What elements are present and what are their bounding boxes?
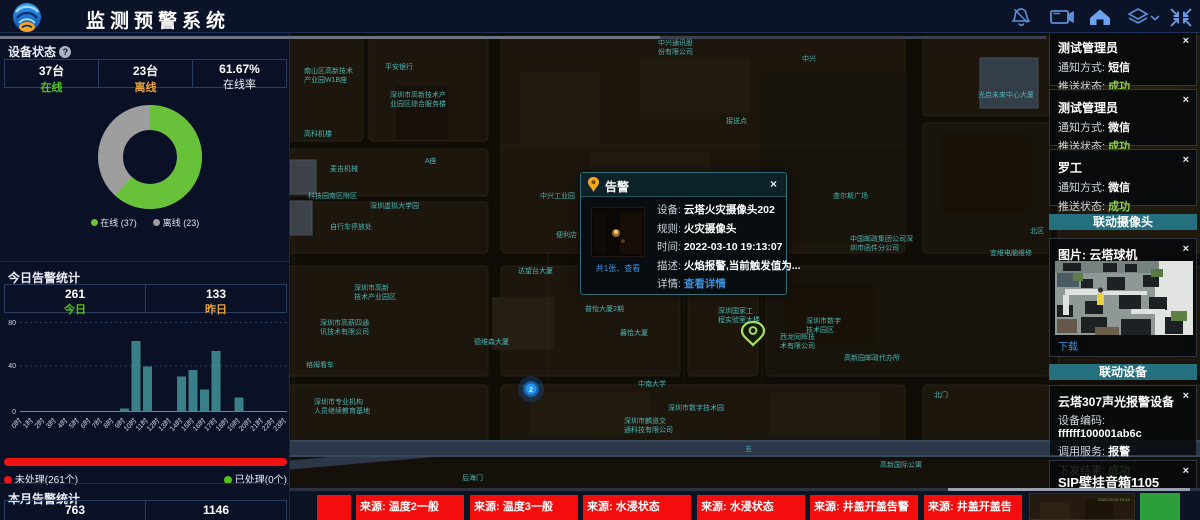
svg-text:后海门: 后海门 bbox=[462, 473, 483, 482]
svg-text:南山区高新技术: 南山区高新技术 bbox=[304, 66, 353, 75]
svg-text:德维森大厦: 德维森大厦 bbox=[474, 337, 509, 346]
svg-text:深圳市数字: 深圳市数字 bbox=[806, 316, 841, 325]
svg-text:4时: 4时 bbox=[55, 416, 69, 430]
svg-text:暮恰大厦: 暮恰大厦 bbox=[620, 328, 648, 337]
svg-text:通科技有限公司: 通科技有限公司 bbox=[624, 425, 673, 434]
svg-text:深圳虚拟大学园: 深圳虚拟大学园 bbox=[370, 201, 419, 210]
svg-text:平安银行: 平安银行 bbox=[385, 62, 413, 71]
svg-text:0: 0 bbox=[12, 409, 16, 416]
svg-text:达望台大厦: 达望台大厦 bbox=[518, 266, 553, 275]
svg-text:中兴通讯股: 中兴通讯股 bbox=[658, 38, 693, 47]
svg-text:便利店: 便利店 bbox=[556, 230, 577, 239]
svg-text:5时: 5时 bbox=[67, 416, 81, 430]
svg-text:深圳市高薪四通: 深圳市高薪四通 bbox=[320, 318, 369, 327]
svg-text:8时: 8时 bbox=[101, 416, 115, 430]
svg-text:3时: 3时 bbox=[44, 416, 58, 430]
svg-text:查尔斯广场: 查尔斯广场 bbox=[833, 191, 868, 200]
svg-text:西龙同辉技: 西龙同辉技 bbox=[780, 332, 815, 341]
svg-text:技术产业园区: 技术产业园区 bbox=[354, 292, 396, 301]
svg-text:中国邮政集团公司深: 中国邮政集团公司深 bbox=[850, 234, 913, 243]
svg-text:麦吉机械: 麦吉机械 bbox=[330, 164, 358, 173]
svg-text:40: 40 bbox=[8, 363, 16, 370]
svg-text:五: 五 bbox=[745, 445, 752, 453]
svg-text:深圳市专业机构: 深圳市专业机构 bbox=[314, 397, 363, 406]
svg-text:深圳市数字技术园: 深圳市数字技术园 bbox=[668, 403, 724, 412]
svg-text:深圳市麟道交: 深圳市麟道交 bbox=[624, 416, 666, 425]
svg-text:2022-03-10 19:13: 2022-03-10 19:13 bbox=[1098, 497, 1130, 502]
svg-text:北区: 北区 bbox=[1030, 227, 1044, 235]
svg-text:宜维电脑维修: 宜维电脑维修 bbox=[990, 248, 1032, 257]
svg-text:人员继续教育基地: 人员继续教育基地 bbox=[314, 406, 370, 415]
svg-text:高科机楼: 高科机楼 bbox=[304, 129, 332, 138]
svg-text:高新园邮政代办所: 高新园邮政代办所 bbox=[844, 353, 900, 362]
svg-text:深圳市高新技术产: 深圳市高新技术产 bbox=[390, 90, 446, 99]
svg-text:格姆看车: 格姆看车 bbox=[306, 360, 334, 369]
svg-text:讯技术有限公司: 讯技术有限公司 bbox=[320, 327, 369, 336]
svg-text:科技园南区附区: 科技园南区附区 bbox=[308, 191, 357, 200]
svg-text:0时: 0时 bbox=[9, 416, 23, 430]
svg-text:产业园W1B座: 产业园W1B座 bbox=[304, 75, 347, 84]
svg-text:接送点: 接送点 bbox=[726, 116, 747, 125]
svg-text:光启未来中心大厦: 光启未来中心大厦 bbox=[978, 90, 1034, 99]
svg-text:圳市函件分公司: 圳市函件分公司 bbox=[850, 243, 899, 252]
svg-text:中兴工业园: 中兴工业园 bbox=[540, 191, 575, 200]
svg-text:份有限公司: 份有限公司 bbox=[658, 47, 693, 56]
svg-text:7时: 7时 bbox=[90, 416, 104, 430]
svg-text:技术园区: 技术园区 bbox=[806, 325, 834, 334]
svg-text:2时: 2时 bbox=[32, 416, 46, 430]
svg-text:深圳国家工: 深圳国家工 bbox=[718, 306, 753, 315]
svg-text:6时: 6时 bbox=[78, 416, 92, 430]
svg-text:1时: 1时 bbox=[21, 416, 35, 430]
svg-text:中南大学: 中南大学 bbox=[638, 379, 666, 388]
svg-text:2: 2 bbox=[529, 387, 533, 394]
svg-text:自行车停放处: 自行车停放处 bbox=[330, 222, 372, 231]
svg-text:深圳市高新: 深圳市高新 bbox=[354, 283, 389, 292]
svg-text:术有限公司: 术有限公司 bbox=[780, 341, 815, 350]
svg-text:中兴: 中兴 bbox=[802, 54, 816, 63]
svg-text:普怡大厦2期: 普怡大厦2期 bbox=[585, 304, 624, 313]
svg-text:高新国际公寓: 高新国际公寓 bbox=[880, 460, 922, 469]
svg-text:A座: A座 bbox=[425, 156, 437, 165]
svg-text:80: 80 bbox=[8, 320, 16, 327]
svg-text:业园区综合服务楼: 业园区综合服务楼 bbox=[390, 99, 446, 108]
svg-text:北门: 北门 bbox=[934, 390, 948, 399]
